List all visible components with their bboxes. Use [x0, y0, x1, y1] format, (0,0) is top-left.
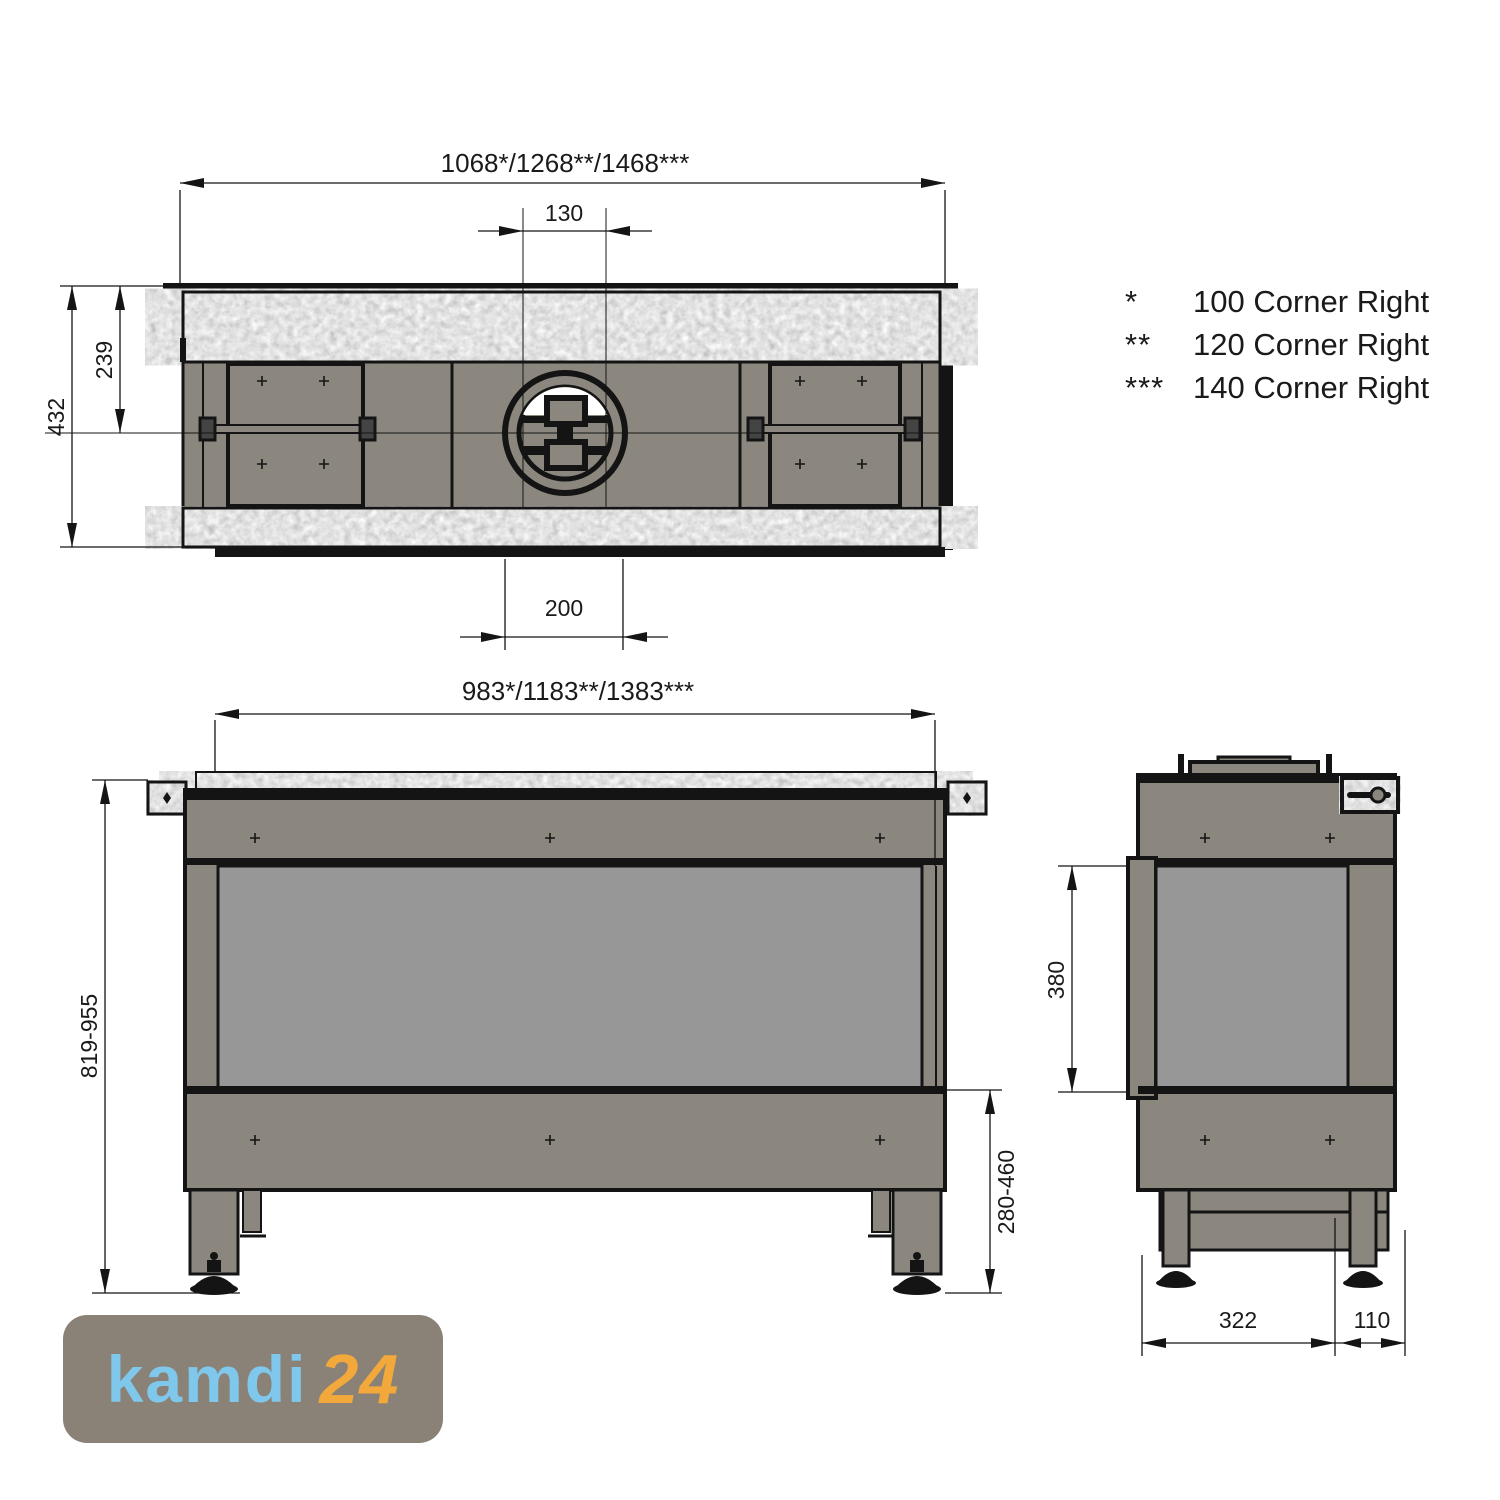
front-view-glass-top-line	[185, 858, 945, 865]
top-view-right-edge	[940, 292, 953, 550]
legend-row-100: * 100 Corner Right	[1125, 280, 1429, 323]
side-view-flue-stub	[1178, 754, 1332, 776]
top-view-left-panel	[228, 364, 363, 506]
side-view-glass	[1156, 866, 1348, 1092]
dim-depth-back-label: 322	[1219, 1307, 1257, 1333]
top-view-granite-band-top	[183, 292, 940, 362]
legend-marker: ***	[1125, 366, 1193, 409]
front-view-glass-bottom-line	[185, 1086, 945, 1094]
dim-top-width-label: 1068*/1268**/1468***	[441, 148, 690, 178]
dim-depth-front-label: 110	[1354, 1307, 1391, 1333]
top-view-left-notch	[180, 338, 186, 362]
legend-label: 120 Corner Right	[1193, 323, 1429, 366]
top-view-granite-band-bottom	[183, 508, 940, 547]
dim-front-height-label: 819-955	[76, 994, 102, 1078]
kamdi24-logo: kamdi 24	[63, 1315, 443, 1443]
side-view-front-frame	[1128, 858, 1156, 1098]
legend-row-120: ** 120 Corner Right	[1125, 323, 1429, 366]
variant-legend: * 100 Corner Right ** 120 Corner Right *…	[1125, 280, 1429, 409]
fireplace-dimension-drawing: 1068*/1268**/1468*** 130 200 432	[0, 0, 1500, 1500]
top-view-right-panel	[770, 364, 900, 506]
side-view-right-leg	[1343, 1190, 1383, 1288]
side-view-left-leg	[1156, 1190, 1196, 1288]
dim-leg-height-label: 280-460	[993, 1150, 1019, 1234]
logo-number: 24	[319, 1339, 399, 1419]
side-view: 380 322 110	[1043, 754, 1405, 1356]
legend-marker: *	[1125, 280, 1193, 323]
front-view-glass	[218, 866, 922, 1092]
logo-word: kamdi	[107, 1341, 308, 1417]
side-view-glass-bottom-line	[1138, 1086, 1395, 1094]
dim-glass-height-label: 380	[1043, 961, 1069, 999]
front-view-left-bracket	[148, 782, 186, 814]
legend-marker: **	[1125, 323, 1193, 366]
legend-row-140: *** 140 Corner Right	[1125, 366, 1429, 409]
air-slider-knob	[1371, 788, 1385, 802]
top-view-rear-lip	[215, 547, 945, 557]
technical-drawing: 1068*/1268**/1468*** 130 200 432	[0, 0, 1500, 1500]
dim-depth-total	[60, 286, 190, 547]
dim-flue-offset-label: 130	[545, 200, 583, 226]
front-view-right-leg	[868, 1190, 941, 1295]
top-view: 1068*/1268**/1468*** 130 200 432	[43, 148, 958, 650]
side-view-glass-top-line	[1138, 858, 1395, 865]
front-view-left-leg	[190, 1190, 266, 1295]
front-view-right-bracket	[948, 782, 986, 814]
dim-depth-total-label: 432	[43, 398, 69, 436]
dim-top-width	[180, 178, 945, 286]
side-view-control-plate	[1342, 778, 1398, 812]
front-view-granite-strip	[196, 772, 936, 790]
legend-label: 100 Corner Right	[1193, 280, 1429, 323]
dim-front-width-label: 983*/1183**/1383***	[462, 676, 694, 706]
dim-depth-front-label: 239	[91, 341, 117, 379]
front-view: 983*/1183**/1383*** 819-955 280-460	[76, 676, 1019, 1295]
dim-flue-offset	[478, 226, 652, 236]
dim-flue-center-label: 200	[545, 595, 583, 621]
front-view-top-band	[185, 790, 945, 800]
legend-label: 140 Corner Right	[1193, 366, 1429, 409]
